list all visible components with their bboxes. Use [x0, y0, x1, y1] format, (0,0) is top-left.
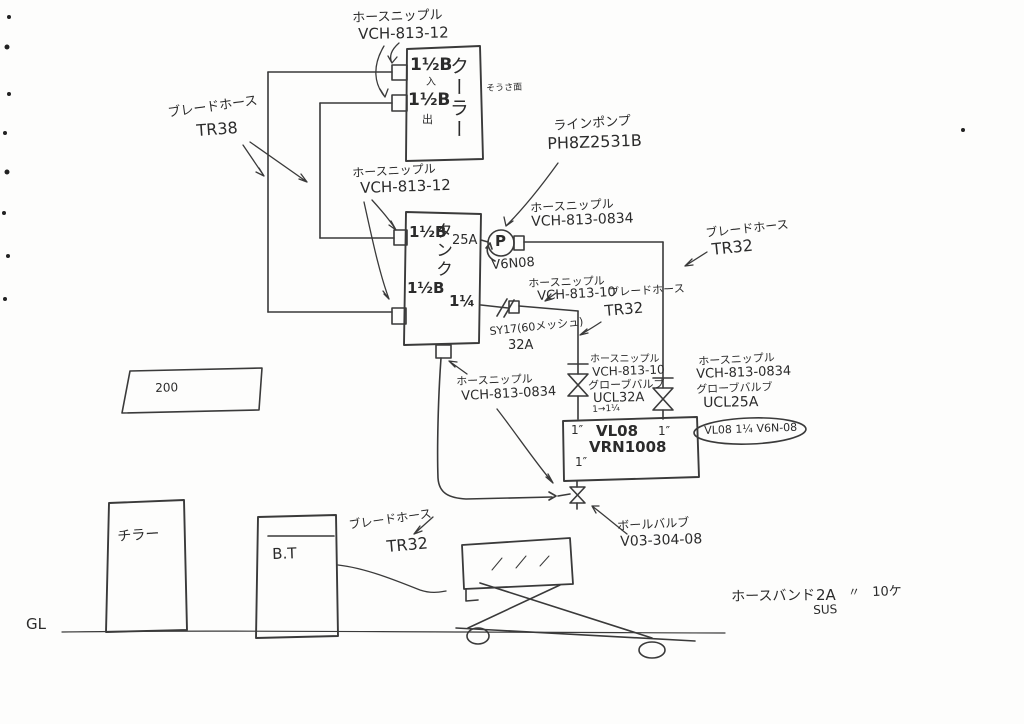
- hose-band-material: SUS: [813, 603, 837, 616]
- chiller-box: [106, 500, 187, 632]
- diagram-canvas: ホースニップル VCH-813-12 1½B 入 1½B 出 クーラー そうさ面…: [0, 0, 1024, 724]
- pump-p-mark: P: [495, 234, 506, 249]
- label-ball-valve-code: V03-304-08: [620, 532, 702, 549]
- globe-valve-left-symbol: [568, 364, 588, 419]
- label-tr38-code: TR38: [196, 120, 238, 139]
- machine-port-right-size: 1″: [658, 425, 670, 437]
- tank-size: 25A: [452, 234, 477, 247]
- pump-model: V6N08: [491, 256, 535, 272]
- dim-200-value: 200: [155, 381, 178, 394]
- hose-band-name: ホースバンド: [731, 589, 815, 604]
- label-strainer-size: 32A: [508, 339, 533, 352]
- label-valve-right-nipple-code: VCH-813-0834: [696, 365, 791, 381]
- machine-model: VRN1008: [589, 440, 666, 455]
- label-valve-right-type: グローブバルブ: [696, 381, 773, 395]
- tank-port-bottom-size: 1¼: [449, 294, 475, 309]
- cooler-port-out-size: 1½B: [408, 92, 450, 109]
- cooler-side-note: そうさ面: [486, 84, 522, 94]
- cooler-name: クーラー: [448, 56, 467, 140]
- label-valve-left-note: 1→1¼: [592, 405, 620, 415]
- cooler-out-mark: 出: [422, 114, 433, 125]
- label-tank-nipple-code: VCH-813-12: [360, 178, 451, 196]
- label-mid-nipple-code: VCH-813-10: [537, 286, 616, 303]
- label-oval-note: VL08 1¼ V6N-08: [704, 422, 797, 436]
- tank-port-mid-size: 1½B: [407, 281, 444, 296]
- hose-band-ditto: 〃: [848, 586, 860, 598]
- label-tr32-right-code: TR32: [711, 238, 754, 258]
- bt-box: [256, 515, 338, 638]
- machine-port-bottom-size: 1″: [575, 456, 587, 468]
- label-valve-left-type: グローブバルブ: [588, 379, 665, 391]
- label-ball-valve-name: ボールバルブ: [617, 516, 690, 532]
- bt-box-name: B.T: [272, 546, 297, 562]
- hose-band-size: 2A: [816, 588, 836, 603]
- label-cooler-nipple-name: ホースニップル: [352, 9, 443, 25]
- machine-port-left-size: 1″: [571, 424, 583, 436]
- tank-name: タンク: [433, 222, 450, 279]
- label-tr32-bottom-code: TR32: [386, 535, 428, 555]
- label-cooler-nipple-code: VCH-813-12: [358, 25, 449, 42]
- label-valve-left-nipple-code: VCH-813-10: [592, 363, 665, 378]
- ground-line: [62, 631, 725, 633]
- label-pump-nipple-code: VCH-813-0834: [531, 211, 634, 229]
- chiller-name: チラー: [117, 527, 160, 544]
- dim-200-box: [122, 368, 262, 413]
- ball-valve-symbol: [570, 481, 585, 509]
- label-line-pump-code: PH8Z2531B: [547, 133, 642, 152]
- gl-mark: GL: [26, 617, 46, 632]
- hose-bt-cart: [338, 565, 446, 592]
- scissor-cart: [456, 538, 695, 658]
- machine-name: VL08: [596, 424, 638, 439]
- label-tr32-mid-code: TR32: [604, 301, 644, 319]
- piping-drawing: [0, 0, 1024, 724]
- cooler-in-mark: 入: [426, 78, 436, 88]
- label-valve-right-code: UCL25A: [703, 395, 758, 410]
- hose-band-qty: 10ケ: [872, 585, 902, 599]
